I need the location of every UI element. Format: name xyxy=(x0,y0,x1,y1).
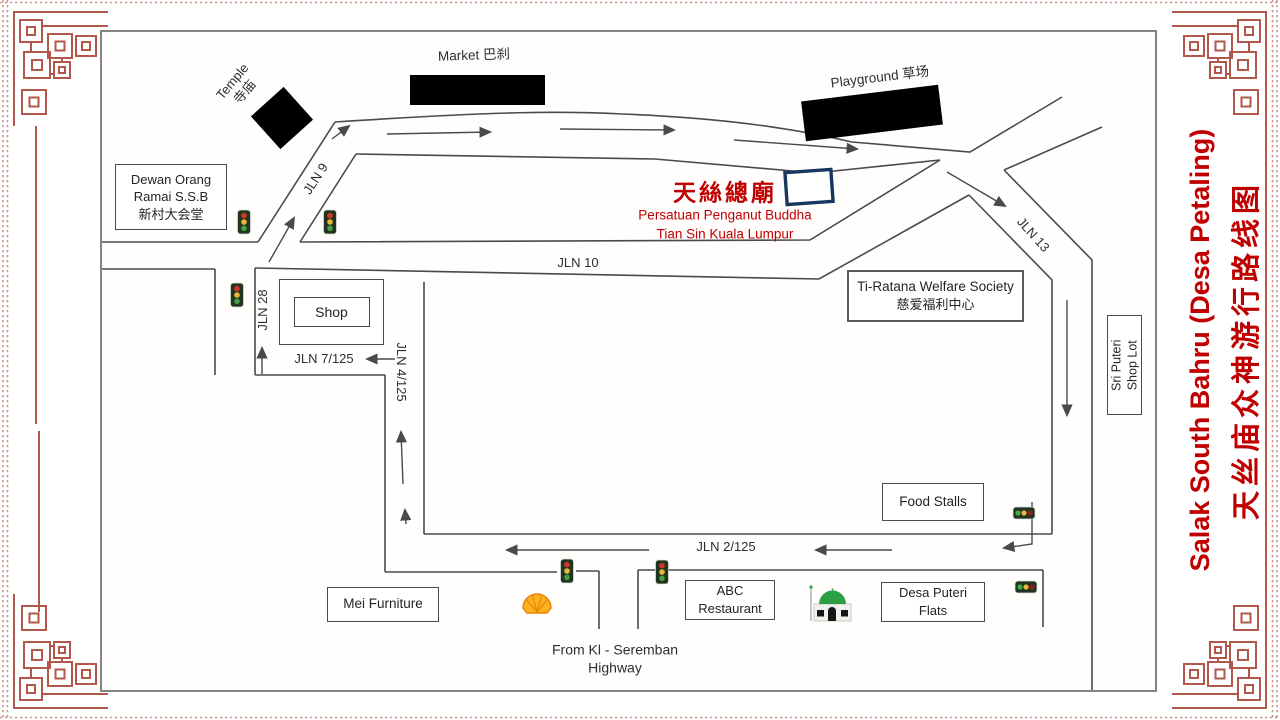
sri-puteri-box: Sri Puteri Shop Lot xyxy=(1107,315,1142,415)
dewan-box: Dewan Orang Ramai S.S.B 新村大会堂 xyxy=(115,164,227,230)
traffic-light-icon xyxy=(656,560,669,584)
corner-ornament-bottom-left xyxy=(14,594,108,708)
desa-puteri-line2: Flats xyxy=(919,602,947,620)
destination-line3: Tian Sin Kuala Lumpur xyxy=(638,226,811,242)
map-drawing xyxy=(102,32,1155,690)
mosque-icon xyxy=(809,585,851,621)
sri-puteri-text: Sri Puteri Shop Lot xyxy=(1108,339,1141,390)
sri-puteri-line2: Shop Lot xyxy=(1125,339,1141,390)
food-stalls-label: Food Stalls xyxy=(899,493,967,511)
dewan-line2: Ramai S.S.B xyxy=(134,188,208,206)
corner-ornament-top-left xyxy=(14,12,108,126)
traffic-light-icon xyxy=(238,210,251,234)
mei-furniture-box: Mei Furniture xyxy=(327,587,439,622)
traffic-light-icon xyxy=(231,283,244,307)
temple-building-block xyxy=(251,87,313,149)
market-label: Market 巴刹 xyxy=(438,46,511,65)
ti-ratana-line2: 慈爱福利中心 xyxy=(896,296,974,314)
destination-line2: Persatuan Penganut Buddha xyxy=(638,208,811,224)
traffic-light-icon xyxy=(1015,581,1037,593)
road-label-jln4-125: JLN 4/125 xyxy=(393,342,409,401)
shop-label: Shop xyxy=(315,303,348,322)
traffic-light-icon xyxy=(561,559,574,583)
traffic-light-icon xyxy=(1013,507,1035,519)
playground-block xyxy=(801,85,943,142)
traffic-light-icon xyxy=(324,210,337,234)
abc-restaurant-box: ABC Restaurant xyxy=(685,580,775,620)
destination-title: 天絲總廟 xyxy=(638,180,811,206)
dewan-line1: Dewan Orang xyxy=(131,171,211,189)
shop-block-box: Shop xyxy=(279,279,384,345)
food-stalls-box: Food Stalls xyxy=(882,483,984,521)
route-map: Dewan Orang Ramai S.S.B 新村大会堂 Shop Ti-Ra… xyxy=(100,30,1157,692)
highway-label: From Kl - Seremban Highway xyxy=(552,642,678,677)
dewan-line3: 新村大会堂 xyxy=(138,206,203,224)
page-title-english: Salak South Bahru (Desa Petaling) xyxy=(1185,68,1219,632)
destination-label: 天絲總廟 Persatuan Penganut Buddha Tian Sin … xyxy=(638,180,811,243)
desa-puteri-line1: Desa Puteri xyxy=(899,584,967,602)
ti-ratana-line1: Ti-Ratana Welfare Society xyxy=(857,278,1014,296)
sri-puteri-line1: Sri Puteri xyxy=(1108,339,1124,390)
left-border-line xyxy=(36,126,39,612)
shop-label-box: Shop xyxy=(294,297,370,327)
abc-line2: Restaurant xyxy=(698,600,762,618)
ti-ratana-box: Ti-Ratana Welfare Society 慈爱福利中心 xyxy=(847,270,1024,322)
market-building-block xyxy=(410,75,545,105)
road-label-jln7-125: JLN 7/125 xyxy=(294,351,353,367)
road-label-jln10: JLN 10 xyxy=(557,255,598,271)
route-map-page: { "page_title": { "english": "Salak Sout… xyxy=(0,0,1280,720)
shell-petrol-station-icon xyxy=(523,594,551,613)
road-label-jln28: JLN 28 xyxy=(255,289,271,330)
abc-line1: ABC xyxy=(717,582,744,600)
page-title-chinese: 天丝庙众神游行路线图 xyxy=(1223,173,1255,527)
road-label-jln2-125: JLN 2/125 xyxy=(696,539,755,555)
highway-line1: From Kl - Seremban xyxy=(552,642,678,660)
highway-line2: Highway xyxy=(552,659,678,677)
mei-furniture-label: Mei Furniture xyxy=(343,595,423,613)
desa-puteri-box: Desa Puteri Flats xyxy=(881,582,985,622)
